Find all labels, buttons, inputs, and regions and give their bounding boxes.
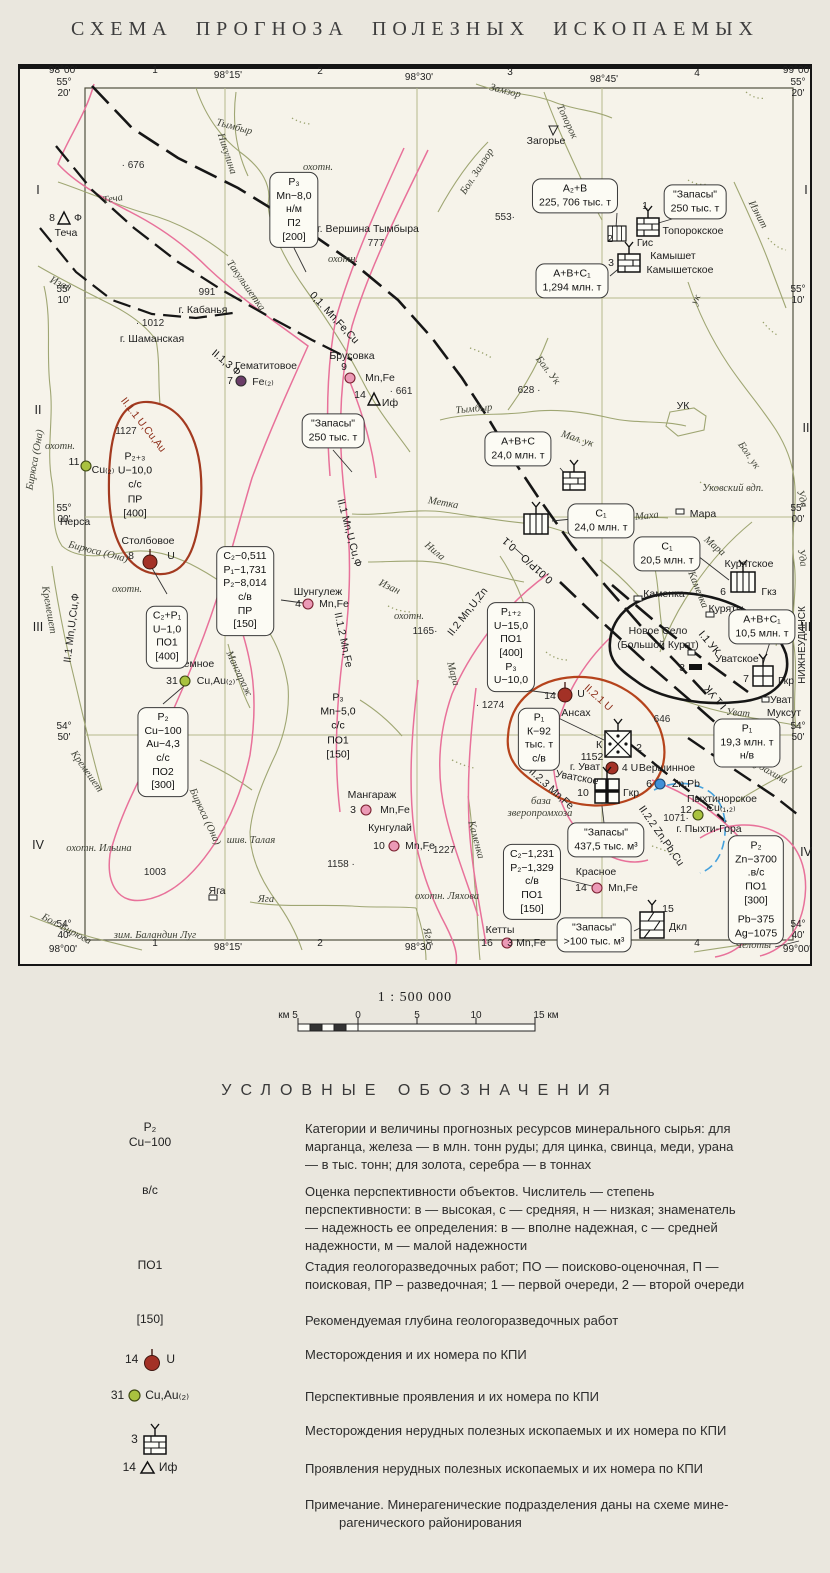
occurrence-dot-pink xyxy=(502,938,512,948)
occurrence-dot-pink xyxy=(345,373,355,383)
triangle-marker xyxy=(58,212,70,224)
map-graphics xyxy=(0,0,830,1573)
occurrence-dot-pink xyxy=(361,805,371,815)
legend-symbol: 14U xyxy=(70,1346,230,1372)
quarry-symbols xyxy=(524,206,773,938)
occurrence-dot-green xyxy=(180,676,190,686)
legend-note: Примечание. Минерагенические подразделен… xyxy=(305,1496,765,1532)
legend-symbol: ПО1 xyxy=(70,1258,230,1273)
legend-item-text: Стадия геологоразведочных работ; ПО — по… xyxy=(305,1258,745,1294)
occurrence-dot-pink xyxy=(389,841,399,851)
faults-black xyxy=(40,86,802,822)
occurrence-dot-green xyxy=(693,810,703,820)
graticule xyxy=(85,88,793,940)
occurrence-dot-blue xyxy=(655,779,665,789)
legend-symbol: 14Иф xyxy=(70,1460,230,1475)
legend-symbol: в/с xyxy=(70,1183,230,1198)
occurrence-dot-purple xyxy=(236,376,246,386)
scanned-map-page: СХЕМА ПРОГНОЗА ПОЛЕЗНЫХ ИСКОПАЕМЫХ xyxy=(0,0,830,1573)
occurrence-dot-pink xyxy=(303,599,313,609)
occurrence-dot-pink xyxy=(592,883,602,893)
legend-item-text: Рекомендуемая глубина геологоразведочных… xyxy=(305,1312,745,1330)
deposit-dot-icon xyxy=(141,1346,163,1372)
legend-symbol: 31Cu,Au₍₂₎ xyxy=(70,1388,230,1403)
legend-item-text: Оценка перспективности объектов. Числите… xyxy=(305,1183,745,1255)
scale-ratio: 1 : 500 000 xyxy=(340,990,490,1006)
legend-item-text: Месторождения и их номера по КПИ xyxy=(305,1346,745,1364)
legend-item-text: Категории и величины прогнозных ресурсов… xyxy=(305,1120,745,1174)
terrain-dots xyxy=(292,92,786,854)
deposit-markers xyxy=(58,212,703,948)
deposit-dot xyxy=(606,762,618,774)
legend-symbol: 3 xyxy=(70,1422,230,1456)
legend-item-text: Перспективные проявления и их номера по … xyxy=(305,1388,745,1406)
ore-zone-ovals xyxy=(109,402,664,806)
legend-symbol: [150] xyxy=(70,1312,230,1327)
scale-bar xyxy=(298,1018,535,1031)
legend-item-text: Месторождения нерудных полезных ископаем… xyxy=(305,1422,745,1440)
legend-title: УСЛОВНЫЕ ОБОЗНАЧЕНИЯ xyxy=(200,1082,640,1100)
black-rect-marker xyxy=(689,664,702,670)
deposit-dot xyxy=(558,682,572,702)
triangle-symbol-icon xyxy=(139,1460,156,1475)
occurrence-dot-green xyxy=(81,461,91,471)
legend-item-text: Проявления нерудных полезных ископаемых … xyxy=(305,1460,745,1478)
rivers xyxy=(30,84,802,960)
brick-symbol-icon xyxy=(141,1422,169,1456)
occurrence-dot-icon xyxy=(127,1388,142,1403)
legend-symbol: Р₂ Cu−100 xyxy=(70,1120,230,1150)
zone-boundaries-pink xyxy=(58,84,806,964)
